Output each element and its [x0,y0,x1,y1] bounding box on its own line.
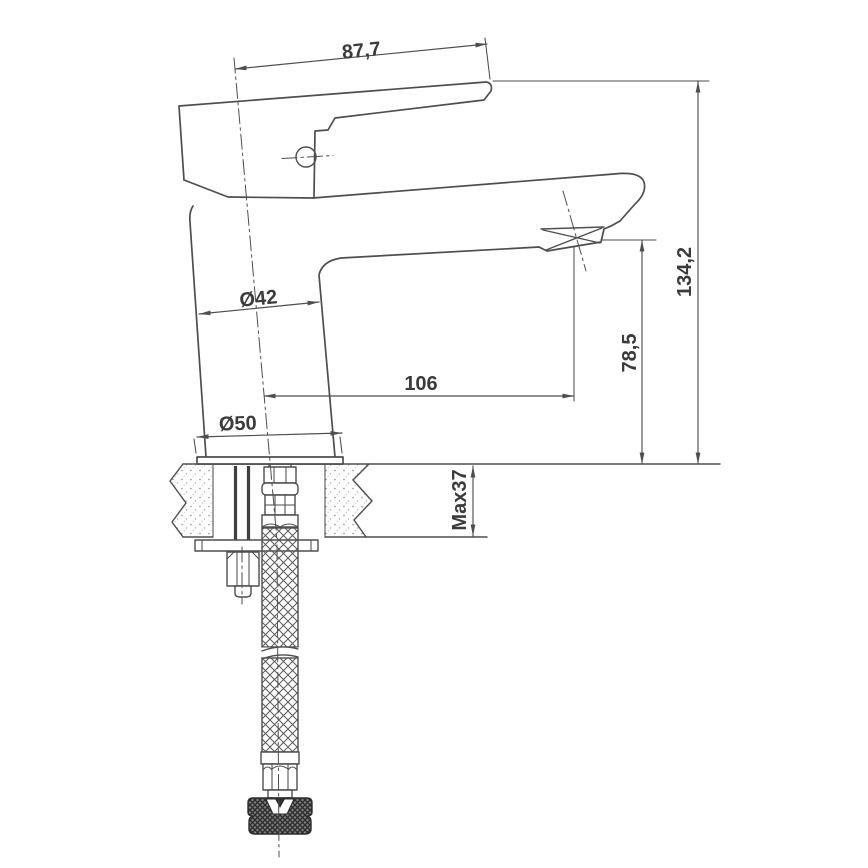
faucet-body-left-edge [190,206,206,457]
faucet-spout-top [313,173,645,226]
handle-underside-rear [184,180,313,198]
fitting-collar-top [262,483,298,495]
hose-braid-lower [262,658,298,752]
dim-total-height: 134,2 [493,81,709,464]
dim-134-label: 134,2 [674,247,696,297]
technical-drawing-page: 87,7 134,2 78,5 106 Ø42 Ø50 [0,0,868,868]
faucet-handle [179,82,491,197]
aerator-top-edge [541,227,604,229]
dim-78-label: 78,5 [619,334,641,373]
hose-neck [268,790,292,798]
pivot-centerline [282,156,333,159]
fitting-hex [264,467,296,483]
hose-ferrule [261,752,299,764]
faucet-dimension-drawing: 87,7 134,2 78,5 106 Ø42 Ø50 [0,0,868,868]
hose-fitting-stack [262,464,298,527]
hose-break-symbol [260,647,300,659]
dim-106-label: 106 [404,373,437,395]
mounting-stud [236,466,249,540]
dim-spout-reach: 106 [264,247,574,401]
dim-handle-length: 87,7 [235,38,490,79]
stud-end-cap [235,586,251,597]
aerator-detail [541,191,604,271]
dim-spout-height: 78,5 [601,240,656,464]
dim-50-label: Ø50 [219,412,258,435]
faucet-spout-underside [319,226,611,457]
mounting-nut [227,552,259,586]
hose-hex-fitting [263,764,297,790]
countertop-section [170,464,720,537]
faucet [179,58,645,857]
dim-base-diameter: Ø50 [194,412,342,453]
fitting-collar-bottom [262,515,298,527]
counter-hatch-right [325,464,372,537]
dim-42-label: Ø42 [239,286,279,312]
dim-87-label: 87,7 [341,38,382,64]
hose-braid-upper [262,528,298,647]
dim-max37-label: Max37 [449,469,471,530]
dim-counter-thickness: Max37 [449,466,473,536]
dim-body-diameter: Ø42 [199,286,319,314]
counter-hatch-left [170,464,213,537]
hose-end-nut [248,798,312,834]
mounting-plate [195,540,318,551]
